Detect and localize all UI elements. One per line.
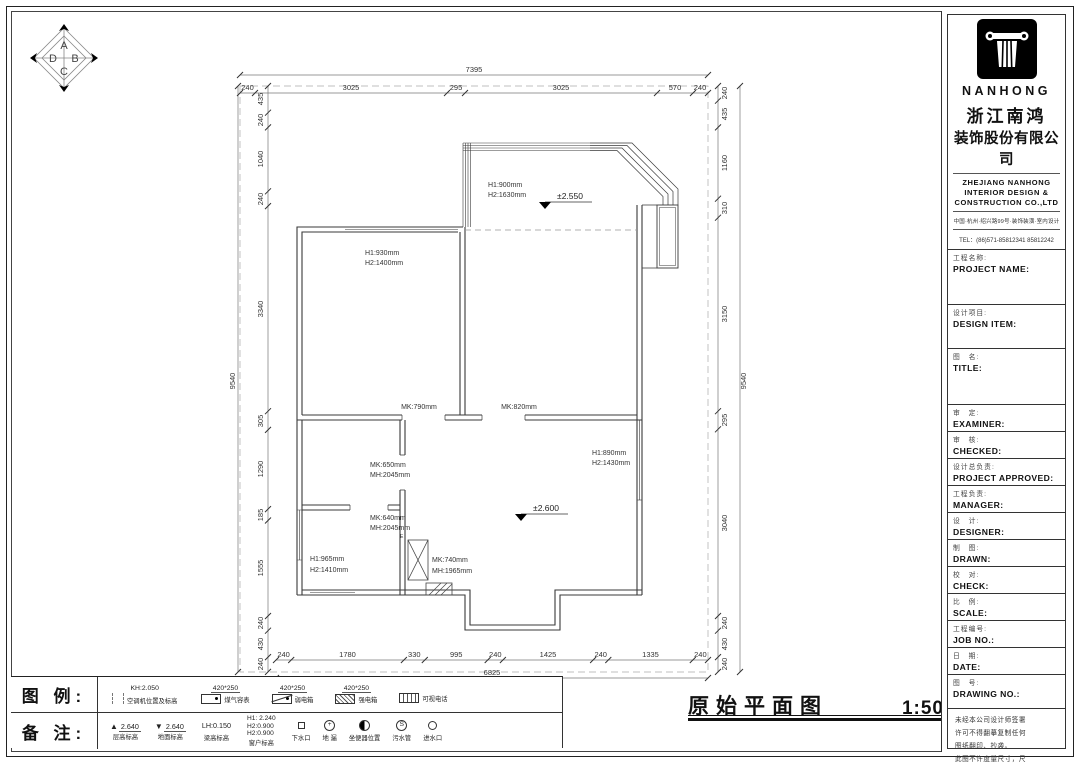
legend-window-label: 窗户标高 bbox=[249, 738, 274, 747]
field-checked-en: CHECKED: bbox=[953, 446, 1060, 456]
legend-drainout-label: 下水口 bbox=[292, 733, 311, 742]
field-checked-cn: 审 核: bbox=[953, 434, 1060, 444]
dim-bottom-1: 1780 bbox=[339, 650, 356, 659]
legend-toilet-label: 坐便器位置 bbox=[349, 733, 380, 742]
legend-ac-code: KH:2.050 bbox=[131, 685, 159, 692]
title-block: NANHONG 浙江南鸿 装饰股份有限公司 ZHEJIANG NANHONG I… bbox=[941, 11, 1070, 752]
legend-row: 图 例: KH:2.050 空调机位置及标高 420*250 煤气容表 420*… bbox=[11, 677, 562, 713]
dim-left-3: 240 bbox=[256, 193, 265, 206]
field-project-name-en: PROJECT NAME: bbox=[953, 264, 1060, 274]
label-rightwin-h2: H2:1430mm bbox=[592, 460, 630, 467]
company-en-3: CONSTRUCTION CO.,LTD bbox=[953, 198, 1060, 208]
label-door-mk790: MK:790mm bbox=[401, 404, 437, 411]
dim-left-1: 240 bbox=[256, 114, 265, 127]
company-en-2: INTERIOR DESIGN & bbox=[953, 188, 1060, 198]
legend-item-floor-dn: ▼ 2.640 地面标高 bbox=[155, 722, 186, 741]
level-marker-main: ±2.600 bbox=[515, 503, 568, 521]
legend-gas-label: 煤气容表 bbox=[224, 695, 249, 704]
legend-item-floor-up: ▲ 2.640 层高标高 bbox=[110, 722, 141, 741]
notes-row-label: 备 注: bbox=[11, 713, 98, 749]
legend-item-phone: 可视电话 bbox=[399, 685, 447, 704]
field-drawing-no-en: DRAWING NO.: bbox=[953, 689, 1060, 699]
nanhong-logo-icon bbox=[977, 19, 1037, 79]
plan-title-underline-thin bbox=[688, 715, 944, 716]
legend-row-label: 图 例: bbox=[11, 677, 98, 712]
field-drawn-cn: 制 图: bbox=[953, 542, 1060, 552]
field-design-item-en: DESIGN ITEM: bbox=[953, 319, 1060, 329]
field-job-no: 工程编号: JOB NO.: bbox=[948, 621, 1065, 648]
compass-letter-c: C bbox=[60, 66, 68, 78]
dim-right-5: 295 bbox=[720, 414, 729, 427]
dim-left-total: 9540 bbox=[230, 373, 237, 390]
up-triangle-icon: ▲ bbox=[110, 723, 118, 731]
dim-right-9: 240 bbox=[720, 658, 729, 671]
legend-item-window: H1: 2.240 H2:0.900 H2:0.900 窗户标高 bbox=[247, 715, 276, 747]
field-scale: 比 例: SCALE: bbox=[948, 594, 1065, 621]
dim-left-11: 240 bbox=[256, 658, 265, 671]
legend-waterin-label: 进水口 bbox=[423, 733, 442, 742]
dim-left-10: 430 bbox=[256, 638, 265, 651]
window-elev-1: H1: 2.240 bbox=[247, 715, 276, 723]
field-check: 校 对: CHECK: bbox=[948, 567, 1065, 594]
field-examiner-en: EXAMINER: bbox=[953, 419, 1060, 429]
label-room1-h2: H2:1400mm bbox=[365, 260, 403, 267]
window-elev-2: H2:0.900 bbox=[247, 723, 276, 731]
field-job-no-en: JOB NO.: bbox=[953, 635, 1060, 645]
dim-bottom-6: 240 bbox=[594, 650, 607, 659]
field-examiner: 审 定: EXAMINER: bbox=[948, 405, 1065, 432]
compass-letter-b: B bbox=[71, 53, 78, 65]
field-manager: 工程负责: MANAGER: bbox=[948, 486, 1065, 513]
down-triangle-icon: ▼ bbox=[155, 723, 163, 731]
company-address: 中国·杭州·绍兴路99号·装饰装潢·室内设计 bbox=[953, 211, 1060, 230]
legend-item-floor-drain: + 地 漏 bbox=[323, 720, 337, 742]
field-design-item: 设计项目: DESIGN ITEM: bbox=[948, 305, 1065, 349]
legend-item-ac: KH:2.050 空调机位置及标高 bbox=[112, 685, 177, 705]
legend-strong-code: 420*250 bbox=[342, 685, 371, 693]
note-line-4: 此图不许度量尺寸，尺 bbox=[955, 754, 1058, 763]
weak-current-box-icon bbox=[272, 694, 292, 704]
field-manager-cn: 工程负责: bbox=[953, 488, 1060, 498]
drain-outlet-icon bbox=[298, 722, 305, 729]
dim-bottom-8: 240 bbox=[694, 650, 707, 659]
disclaimer-notes: 未经本公司设计师签署 许可不得翻摹复制任何 图纸翻印、抄袭。 此图不许度量尺寸，… bbox=[948, 709, 1065, 763]
plan-scale: 1:50 bbox=[902, 698, 944, 720]
legend-gas-code: 420*250 bbox=[211, 685, 240, 693]
brand-section: NANHONG 浙江南鸿 装饰股份有限公司 ZHEJIANG NANHONG I… bbox=[948, 15, 1065, 249]
label-entry-mk740: MK:740mm bbox=[432, 557, 468, 564]
field-project-name-cn: 工程名称: bbox=[953, 252, 1060, 262]
dim-right-3: 310 bbox=[720, 202, 729, 215]
legend-item-gas: 420*250 煤气容表 bbox=[201, 685, 249, 705]
label-bay-h2: H2:1630mm bbox=[488, 192, 526, 199]
label-door-mk820: MK:820mm bbox=[501, 404, 537, 411]
legend-floorup-code: 2.640 bbox=[119, 722, 141, 732]
field-drawing-no-cn: 图 号: bbox=[953, 677, 1060, 687]
label-blroom-h2: H2:1410mm bbox=[310, 567, 348, 574]
video-phone-icon bbox=[399, 693, 419, 703]
dimension-texts: 7395 240 3025 295 3025 570 240 9540 435 … bbox=[230, 65, 748, 677]
label-door-mk640-h: MH:2045mm bbox=[370, 525, 410, 532]
notes-row: 备 注: ▲ 2.640 层高标高 ▼ 2.640 地面标高 LH:0.150 … bbox=[11, 713, 562, 749]
field-date-en: DATE: bbox=[953, 662, 1060, 672]
dim-right-total: 9540 bbox=[739, 373, 748, 390]
field-title-cn: 图 名: bbox=[953, 351, 1060, 361]
room-labels: H1:900mm H2:1630mm H1:930mm H2:1400mm MK… bbox=[310, 182, 630, 575]
dim-bottom-4: 240 bbox=[489, 650, 502, 659]
field-project-approved-cn: 设计总负责: bbox=[953, 461, 1060, 471]
note-line-1: 未经本公司设计师签署 bbox=[955, 715, 1058, 728]
company-cn-2: 装饰股份有限公司 bbox=[953, 127, 1060, 169]
legend-ac-label: 空调机位置及标高 bbox=[127, 696, 177, 705]
note-line-3: 图纸翻印、抄袭。 bbox=[955, 741, 1058, 754]
field-check-en: CHECK: bbox=[953, 581, 1060, 591]
dim-top-5: 240 bbox=[694, 83, 707, 92]
field-checked: 审 核: CHECKED: bbox=[948, 432, 1065, 459]
legend-floordn-label: 地面标高 bbox=[158, 732, 183, 741]
dim-bottom-0: 240 bbox=[277, 650, 290, 659]
dim-left-8: 1555 bbox=[256, 560, 265, 577]
field-drawn: 制 图: DRAWN: bbox=[948, 540, 1065, 567]
brand-name: NANHONG bbox=[953, 84, 1060, 98]
dim-left-6: 1290 bbox=[256, 461, 265, 478]
legend-sewage-label: 污水管 bbox=[392, 733, 411, 742]
dim-right-0: 240 bbox=[720, 87, 729, 100]
label-door-mk650-h: MH:2045mm bbox=[370, 472, 410, 479]
dim-bottom-3: 995 bbox=[450, 650, 463, 659]
field-date-cn: 日 期: bbox=[953, 650, 1060, 660]
legend-table: 图 例: KH:2.050 空调机位置及标高 420*250 煤气容表 420*… bbox=[11, 676, 563, 748]
legend-floorup-label: 层高标高 bbox=[113, 732, 138, 741]
dim-top-3: 3025 bbox=[553, 83, 570, 92]
field-title-en: TITLE: bbox=[953, 363, 1060, 373]
level-upper-text: ±2.550 bbox=[557, 191, 583, 201]
dim-right-1: 435 bbox=[720, 108, 729, 121]
dim-left-2: 1040 bbox=[256, 151, 265, 168]
field-scale-en: SCALE: bbox=[953, 608, 1060, 618]
dim-right-8: 430 bbox=[720, 638, 729, 651]
dim-left-5: 305 bbox=[256, 415, 265, 428]
level-main-text: ±2.600 bbox=[533, 503, 559, 513]
dim-right-7: 240 bbox=[720, 617, 729, 630]
field-manager-en: MANAGER: bbox=[953, 500, 1060, 510]
legend-phone-label: 可视电话 bbox=[422, 694, 447, 703]
field-check-cn: 校 对: bbox=[953, 569, 1060, 579]
walls bbox=[297, 143, 678, 630]
dim-top-1: 3025 bbox=[343, 83, 360, 92]
dim-left-4: 3340 bbox=[256, 301, 265, 318]
company-cn-1: 浙江南鸿 bbox=[953, 102, 1060, 127]
label-e-mark: E bbox=[400, 534, 404, 540]
label-blroom-h1: H1:965mm bbox=[310, 556, 344, 563]
company-tel: TEL：(86)571-85812341 85812242 bbox=[953, 230, 1060, 249]
field-drawing-no: 图 号: DRAWING NO.: bbox=[948, 675, 1065, 709]
duct-xbox bbox=[408, 540, 428, 580]
legend-strong-label: 强电箱 bbox=[358, 695, 377, 704]
legend-item-strong: 420*250 强电箱 bbox=[335, 685, 377, 705]
label-entry-mh: MH:1965mm bbox=[432, 568, 472, 575]
field-title: 图 名: TITLE: bbox=[948, 349, 1065, 405]
label-door-mk650: MK:650mm bbox=[370, 462, 406, 469]
dim-top-0: 240 bbox=[241, 83, 254, 92]
compass-letter-a: A bbox=[60, 40, 68, 52]
field-design-item-cn: 设计项目: bbox=[953, 307, 1060, 317]
legend-item-water-in: 进水口 bbox=[423, 720, 442, 742]
label-rightwin-h1: H1:890mm bbox=[592, 450, 626, 457]
legend-floordrain-label: 地 漏 bbox=[323, 733, 337, 742]
plan-boundary-dashed bbox=[240, 86, 708, 672]
dim-right-2: 1160 bbox=[720, 155, 729, 171]
company-en-1: ZHEJIANG NANHONG bbox=[953, 178, 1060, 188]
dimension-lines bbox=[238, 75, 740, 678]
label-bay-h1: H1:900mm bbox=[488, 182, 522, 189]
strong-current-box-icon bbox=[335, 694, 355, 704]
water-inlet-icon bbox=[428, 721, 437, 730]
legend-item-toilet: 坐便器位置 bbox=[349, 720, 380, 742]
window-elev-3: H2:0.900 bbox=[247, 730, 276, 738]
legend-item-drain-out: 下水口 bbox=[292, 720, 311, 742]
compass-letter-d: D bbox=[49, 53, 57, 65]
toilet-position-icon bbox=[359, 720, 370, 731]
field-designer: 设 计: DESIGNER: bbox=[948, 513, 1065, 540]
field-examiner-cn: 审 定: bbox=[953, 407, 1060, 417]
dim-top-2: 295 bbox=[450, 83, 463, 92]
dim-top-4: 570 bbox=[669, 83, 682, 92]
label-door-mk640: MK:640mm bbox=[370, 515, 406, 522]
drawing-sheet: A B C D 7395 240 bbox=[0, 0, 1080, 763]
legend-item-sewage: S 污水管 bbox=[392, 720, 411, 742]
legend-floordn-code: 2.640 bbox=[164, 722, 186, 732]
legend-beam-code: LH:0.150 bbox=[200, 721, 233, 730]
floor-drain-icon: + bbox=[324, 720, 335, 731]
floor-plan: 7395 240 3025 295 3025 570 240 9540 435 … bbox=[230, 55, 760, 695]
legend-weak-code: 420*250 bbox=[278, 685, 307, 693]
field-drawn-en: DRAWN: bbox=[953, 554, 1060, 564]
dim-bottom-7: 1335 bbox=[642, 650, 659, 659]
dim-bottom-2: 330 bbox=[408, 650, 421, 659]
field-project-approved: 设计总负责: PROJECT APPROVED: bbox=[948, 459, 1065, 486]
legend-item-beam: LH:0.150 梁高标高 bbox=[200, 721, 233, 742]
level-marker-upper: ±2.550 bbox=[539, 191, 592, 209]
field-project-name: 工程名称: PROJECT NAME: bbox=[948, 249, 1065, 305]
dim-left-0: 435 bbox=[256, 93, 265, 106]
legend-item-weak: 420*250 弱电箱 bbox=[272, 685, 314, 705]
label-room1-h1: H1:930mm bbox=[365, 250, 399, 257]
field-project-approved-en: PROJECT APPROVED: bbox=[953, 473, 1060, 483]
gas-meter-icon bbox=[201, 694, 221, 704]
field-designer-en: DESIGNER: bbox=[953, 527, 1060, 537]
field-job-no-cn: 工程编号: bbox=[953, 623, 1060, 633]
note-line-2: 许可不得翻摹复制任何 bbox=[955, 728, 1058, 741]
sewage-pipe-icon: S bbox=[396, 720, 407, 731]
field-designer-cn: 设 计: bbox=[953, 515, 1060, 525]
field-date: 日 期: DATE: bbox=[948, 648, 1065, 675]
dim-left-7: 185 bbox=[256, 509, 265, 522]
dim-left-9: 240 bbox=[256, 617, 265, 630]
dim-right-6: 3040 bbox=[720, 515, 729, 532]
dim-top-total: 7395 bbox=[466, 65, 483, 74]
orientation-compass-icon: A B C D bbox=[28, 22, 100, 94]
plan-title-underline-thick bbox=[688, 718, 944, 721]
dim-bottom-5: 1425 bbox=[540, 650, 557, 659]
ac-unit-icon bbox=[112, 693, 124, 704]
electric-box-hatch bbox=[426, 583, 452, 595]
field-scale-cn: 比 例: bbox=[953, 596, 1060, 606]
dim-right-4: 3150 bbox=[720, 306, 729, 323]
legend-beam-label: 梁高标高 bbox=[204, 733, 229, 742]
legend-weak-label: 弱电箱 bbox=[295, 695, 314, 704]
